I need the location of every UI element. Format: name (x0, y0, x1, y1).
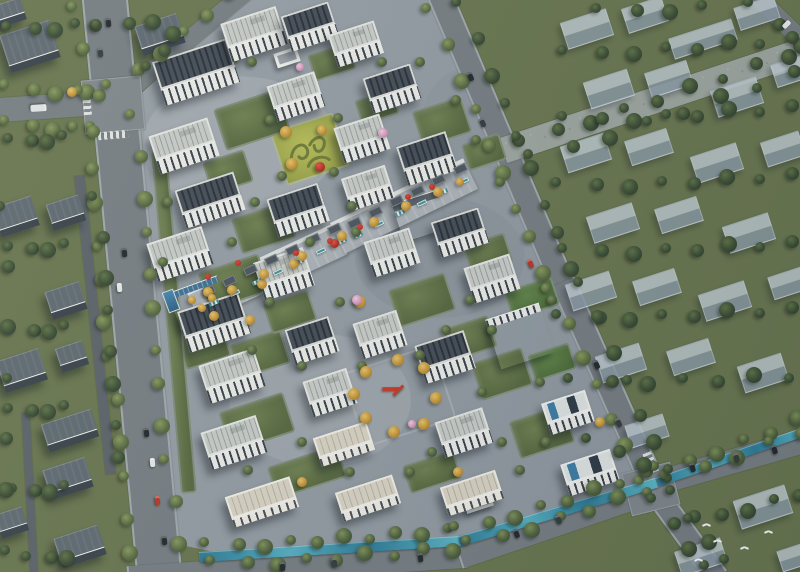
cafe-umbrella (327, 238, 333, 244)
tree (740, 503, 756, 519)
tree (622, 179, 638, 195)
tree (250, 197, 260, 207)
tree (369, 217, 379, 227)
tree (365, 534, 375, 544)
tree (317, 125, 327, 135)
flying-bird (740, 545, 749, 550)
tree (0, 319, 16, 335)
tree (716, 508, 729, 521)
tree (615, 479, 625, 489)
tree (646, 493, 656, 503)
flying-bird (713, 538, 722, 543)
tree (769, 494, 779, 504)
tree (199, 537, 209, 547)
tree (352, 295, 362, 305)
tree (158, 44, 171, 57)
tree (515, 465, 525, 475)
tree (484, 68, 500, 84)
tree (596, 46, 609, 59)
tree (786, 99, 799, 112)
tree (535, 377, 545, 387)
tree (170, 495, 183, 508)
tree (636, 457, 652, 473)
tree (497, 437, 507, 447)
tree (563, 317, 576, 330)
tree (87, 125, 100, 138)
cafe-umbrella (235, 260, 241, 266)
car (121, 247, 127, 256)
tree (622, 312, 638, 328)
tree (101, 79, 111, 89)
tree (243, 465, 253, 475)
tree (788, 65, 800, 78)
tree (86, 162, 99, 175)
tree (40, 404, 56, 420)
tree (573, 277, 583, 287)
context-building (55, 340, 89, 372)
tree (93, 89, 106, 102)
tree (668, 517, 681, 530)
tree (57, 130, 67, 140)
tree (678, 373, 688, 383)
tree (681, 541, 697, 557)
tree (483, 516, 496, 529)
tree (242, 556, 255, 569)
tree (750, 57, 763, 70)
tree (87, 191, 97, 201)
tree (39, 134, 55, 150)
tree (91, 19, 101, 29)
tree (286, 158, 298, 170)
tree (0, 482, 14, 498)
tree (144, 268, 157, 281)
tree (561, 495, 574, 508)
tree (511, 204, 521, 214)
tree (47, 22, 63, 38)
tree (245, 315, 255, 325)
tree (125, 109, 135, 119)
tree (329, 167, 339, 177)
tree (336, 528, 352, 544)
tree (227, 237, 237, 247)
tree (418, 362, 430, 374)
tree (158, 257, 168, 267)
tree (784, 373, 794, 383)
tree (661, 109, 671, 119)
tree (640, 376, 656, 392)
tree (205, 555, 215, 565)
tree (523, 160, 539, 176)
tree (535, 265, 551, 281)
tree (26, 242, 39, 255)
red-sphere-sculpture (315, 162, 325, 172)
tree (48, 86, 64, 102)
tree (427, 447, 437, 457)
tree (523, 230, 536, 243)
car (417, 552, 423, 561)
tree (0, 79, 9, 89)
tree (165, 26, 181, 42)
tree (631, 4, 644, 17)
tree (665, 485, 675, 495)
bus (30, 104, 46, 112)
tree (552, 123, 565, 136)
tree (347, 201, 357, 211)
tree (112, 451, 125, 464)
tree (0, 545, 10, 555)
tree (29, 22, 42, 35)
tree (265, 115, 275, 125)
tree (563, 261, 579, 277)
tree (188, 296, 196, 304)
tree (227, 285, 237, 295)
tree (699, 560, 709, 570)
tree (297, 361, 307, 371)
tree (415, 57, 425, 67)
tree (430, 392, 442, 404)
tree (683, 513, 693, 523)
tree (297, 477, 307, 487)
tree (581, 433, 591, 443)
tree (70, 18, 80, 28)
tree (541, 437, 551, 447)
tree (68, 121, 78, 131)
tree (786, 301, 799, 314)
tree (755, 308, 765, 318)
tree (67, 1, 77, 11)
tree (2, 260, 15, 273)
tree (392, 354, 404, 366)
tree (613, 445, 626, 458)
context-building (0, 195, 40, 237)
tree (739, 434, 749, 444)
tree (719, 169, 735, 185)
cafe-umbrella (293, 250, 299, 256)
tree (2, 373, 12, 383)
tree (453, 467, 463, 477)
car (97, 47, 103, 56)
cafe-umbrella (357, 224, 363, 230)
tree (337, 231, 347, 241)
tree (511, 131, 521, 141)
tree (663, 464, 673, 474)
tree (557, 243, 567, 253)
tree (201, 9, 214, 22)
tree (28, 324, 41, 337)
tree (622, 375, 632, 385)
car (154, 495, 160, 504)
car (105, 17, 111, 26)
tree (472, 32, 485, 45)
car (116, 282, 122, 291)
tree (26, 404, 39, 417)
tree (171, 536, 187, 552)
tree (575, 350, 591, 366)
tree (677, 107, 690, 120)
tree (661, 243, 671, 253)
tree (497, 529, 510, 542)
tree (414, 527, 430, 543)
tree (626, 246, 642, 262)
tree (442, 38, 455, 51)
tree (257, 279, 267, 289)
tree (289, 259, 299, 269)
tree (297, 437, 307, 447)
tree (333, 113, 343, 123)
flying-bird (694, 557, 703, 562)
tree (3, 241, 13, 251)
tree (551, 309, 561, 319)
tree (0, 115, 9, 125)
tree (296, 63, 304, 71)
tree (793, 489, 800, 502)
tree (591, 3, 601, 13)
tree (456, 178, 464, 186)
tree (45, 551, 58, 564)
tree (27, 119, 40, 132)
aerial-masterplan-rendering (0, 0, 800, 572)
car (149, 457, 155, 466)
car (143, 427, 149, 436)
tree (786, 235, 799, 248)
tree (59, 550, 75, 566)
tree (662, 4, 678, 20)
tree (415, 350, 425, 360)
tree (634, 409, 647, 422)
tree (59, 480, 69, 490)
tree (445, 543, 461, 559)
tree (0, 432, 13, 445)
tree (67, 87, 77, 97)
tree (405, 467, 415, 477)
tree (691, 244, 704, 257)
tree (441, 325, 451, 335)
tree (477, 387, 487, 397)
cafe-umbrella (205, 274, 211, 280)
tree (500, 98, 510, 108)
tree (567, 140, 580, 153)
tree (1, 21, 11, 31)
tree (96, 314, 112, 330)
tree (259, 269, 269, 279)
tree (378, 128, 388, 138)
tree (646, 434, 662, 450)
tree (122, 545, 138, 561)
tree (586, 480, 602, 496)
tree (137, 191, 153, 207)
tree (59, 238, 69, 248)
tree (121, 513, 134, 526)
tree (360, 412, 372, 424)
tree (59, 320, 69, 330)
tree (557, 111, 567, 121)
tree (790, 410, 800, 426)
tree (547, 295, 557, 305)
tree (277, 171, 287, 181)
tree (487, 325, 497, 335)
cafe-umbrella (405, 194, 411, 200)
tree (257, 539, 273, 555)
tree (28, 83, 41, 96)
tree (563, 373, 573, 383)
context-building (44, 281, 87, 320)
tree (551, 177, 561, 187)
tree (145, 14, 161, 30)
tree (209, 311, 219, 321)
tree (3, 403, 13, 413)
tree (606, 345, 622, 361)
tree (721, 34, 737, 50)
tree (591, 178, 604, 191)
tree (302, 553, 312, 563)
tree (709, 446, 725, 462)
tree (551, 226, 564, 239)
tree (465, 295, 475, 305)
flying-bird (702, 522, 711, 527)
tree (596, 112, 609, 125)
tree (163, 197, 173, 207)
tree (29, 484, 42, 497)
car (161, 535, 167, 544)
car (331, 557, 337, 566)
tree (619, 103, 629, 113)
tree (208, 294, 216, 302)
tree (41, 324, 57, 340)
tree (360, 366, 372, 378)
tree (59, 400, 69, 410)
tree (3, 133, 13, 143)
tree (688, 177, 701, 190)
tree (345, 467, 355, 477)
tree (557, 45, 567, 55)
tree (483, 139, 496, 152)
tree (471, 104, 481, 114)
tree (112, 393, 125, 406)
context-building (0, 348, 48, 393)
tree (540, 200, 550, 210)
tree (389, 526, 402, 539)
cafe-umbrella (429, 184, 435, 190)
tree (123, 17, 136, 30)
tree (719, 554, 729, 564)
tree (712, 375, 725, 388)
car (279, 561, 285, 570)
tree (523, 149, 533, 159)
tree (42, 484, 58, 500)
tree (408, 420, 416, 428)
tree (449, 521, 459, 531)
tree (471, 135, 481, 145)
context-building (0, 506, 29, 538)
tree (418, 418, 430, 430)
tree (105, 376, 121, 392)
tree (661, 42, 671, 52)
tree (280, 126, 292, 138)
tree (26, 134, 39, 147)
tree (691, 43, 704, 56)
tree (691, 110, 704, 123)
tree (247, 57, 257, 67)
tree (746, 367, 762, 383)
tree (461, 535, 471, 545)
tree (755, 174, 765, 184)
tree (401, 201, 411, 211)
tree (583, 505, 596, 518)
tree (247, 345, 257, 355)
tree (97, 231, 110, 244)
tree (388, 426, 400, 438)
tree (111, 420, 121, 430)
tree (21, 551, 31, 561)
tree (697, 0, 707, 10)
tree (786, 167, 799, 180)
tree (657, 176, 667, 186)
tree (377, 57, 387, 67)
tree (198, 304, 206, 312)
tree (495, 177, 505, 187)
tree (154, 418, 170, 434)
tree (451, 95, 461, 105)
tree (699, 460, 712, 473)
tree (606, 375, 619, 388)
tree (657, 309, 667, 319)
tree (421, 3, 431, 13)
tree (141, 61, 151, 71)
tree (595, 417, 605, 427)
tree (592, 379, 602, 389)
tree (305, 237, 315, 247)
tree (541, 283, 551, 293)
tree (348, 388, 360, 400)
tree (265, 297, 275, 307)
tree (145, 300, 161, 316)
tree (233, 538, 246, 551)
flying-bird (764, 529, 773, 534)
tree (718, 74, 728, 84)
tree (40, 242, 56, 258)
tree (390, 551, 400, 561)
tree (626, 113, 642, 129)
tree (786, 31, 799, 44)
tree (335, 297, 345, 307)
tree (651, 95, 664, 108)
tree (682, 78, 698, 94)
